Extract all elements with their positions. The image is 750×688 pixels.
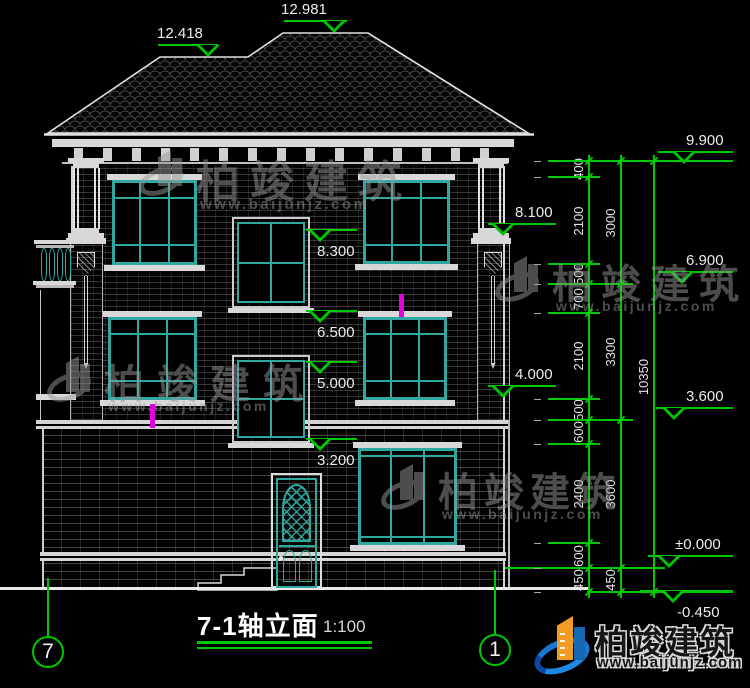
elevation-triangle-inner bbox=[326, 21, 342, 29]
door-mid-rail bbox=[279, 545, 315, 547]
dim-tick-line bbox=[548, 263, 600, 265]
column-right-shaft-line bbox=[499, 168, 501, 229]
elevation-triangle-inner bbox=[661, 556, 677, 564]
elevation-triangle-icon bbox=[672, 152, 696, 164]
balcony-deck-2 bbox=[36, 285, 74, 288]
dim-tick-line bbox=[548, 312, 600, 314]
elevation-triangle-inner bbox=[665, 591, 681, 599]
dim-label: 3600 bbox=[602, 459, 618, 529]
balcony-wing-band bbox=[36, 394, 76, 400]
elevation-triangle-inner bbox=[676, 152, 692, 160]
column-right-shaft-line bbox=[478, 168, 480, 229]
revision-mark bbox=[399, 294, 404, 317]
elevation-value: 12.418 bbox=[157, 25, 217, 43]
stair-window-mullion-h bbox=[239, 398, 303, 400]
window-sill bbox=[350, 545, 465, 551]
cornice-fascia bbox=[52, 139, 514, 147]
window-sill bbox=[104, 265, 205, 271]
elevation-line bbox=[640, 590, 733, 592]
column-left-shaft-line bbox=[77, 168, 79, 229]
balcony-top-rail bbox=[34, 240, 75, 244]
elevation-value: 8.300 bbox=[317, 243, 377, 261]
column-left-shaft-line bbox=[98, 168, 100, 229]
column-right-pedestal-cap bbox=[471, 238, 511, 244]
dim-ext-dash bbox=[534, 284, 541, 285]
elevation-line bbox=[658, 271, 733, 273]
dim-label: 2400 bbox=[570, 459, 586, 529]
dim-tick-line bbox=[548, 398, 600, 400]
pier-right-downpipe bbox=[491, 276, 495, 364]
balcony-baluster bbox=[49, 248, 55, 281]
door-panel-left bbox=[283, 550, 296, 582]
window-mullion-v bbox=[390, 451, 392, 542]
elevation-drawing-canvas: 7-1轴立面 1:100 柏竣建筑 www.baijunjz.com const… bbox=[0, 0, 750, 688]
elevation-triangle-icon bbox=[661, 591, 685, 603]
elevation-value: 6.900 bbox=[686, 252, 746, 270]
cornice-dentil-band bbox=[74, 148, 506, 161]
window-sill bbox=[355, 264, 458, 270]
elevation-triangle-icon bbox=[196, 45, 220, 57]
elevation-triangle-inner bbox=[674, 272, 690, 280]
title-underline-1 bbox=[197, 641, 372, 644]
balcony-wing-wall bbox=[40, 290, 73, 420]
brand-tower-blue-icon bbox=[574, 627, 585, 660]
elevation-triangle-inner bbox=[666, 408, 682, 416]
dim-tick-line bbox=[548, 176, 600, 178]
brand-tower-windows bbox=[560, 628, 565, 656]
dim-chain-line bbox=[620, 155, 622, 598]
elevation-value: 9.900 bbox=[686, 132, 746, 150]
window-mullion-h bbox=[366, 380, 444, 382]
elevation-value: 4.000 bbox=[515, 366, 575, 384]
column-left-shaft-line bbox=[73, 168, 75, 229]
wall-edge-right-inner bbox=[508, 420, 510, 588]
elevation-value: 3.600 bbox=[686, 388, 746, 406]
elevation-value: 3.200 bbox=[317, 452, 377, 470]
window-mullion-h bbox=[366, 333, 444, 335]
column-left-shaft-line bbox=[94, 168, 96, 229]
dim-ext-dash bbox=[534, 313, 541, 314]
drawing-scale: 1:100 bbox=[323, 617, 366, 637]
brand-url: www.baijunjz.com bbox=[597, 654, 742, 671]
elevation-value: ±0.000 bbox=[675, 536, 735, 554]
dim-ext-dash bbox=[534, 399, 541, 400]
window-mullion-v bbox=[423, 451, 425, 542]
door-knob bbox=[279, 556, 283, 560]
elevation-triangle-icon bbox=[657, 556, 681, 568]
pier-left-downpipe bbox=[84, 276, 88, 364]
window-mullion-h bbox=[111, 333, 194, 335]
dim-tick-line bbox=[505, 567, 665, 569]
dim-tick-line bbox=[548, 283, 633, 285]
roof-tiles bbox=[48, 33, 528, 133]
title-underline-2 bbox=[197, 647, 372, 649]
elevation-triangle-icon bbox=[670, 272, 694, 284]
dim-ext-dash bbox=[534, 420, 541, 421]
drawing-title: 7-1轴立面 bbox=[197, 606, 319, 643]
dim-ext-dash bbox=[534, 161, 541, 162]
window-mullion-v bbox=[139, 183, 141, 262]
dim-label: 10350 bbox=[635, 342, 651, 412]
dim-label: 600 bbox=[570, 397, 586, 467]
window-mullion-h bbox=[111, 380, 194, 382]
dim-label: 450 bbox=[602, 545, 618, 615]
column-right-shaft-line bbox=[482, 168, 484, 229]
axis-leader-line bbox=[494, 570, 496, 634]
dim-label: 3300 bbox=[602, 317, 618, 387]
axis-leader-line bbox=[47, 578, 49, 636]
stair-window-sill bbox=[228, 443, 314, 448]
dim-ext-dash bbox=[534, 568, 541, 569]
elevation-value: 6.500 bbox=[317, 324, 377, 342]
elevation-value: 12.981 bbox=[281, 1, 341, 19]
window-frame bbox=[112, 180, 197, 265]
balcony-baluster bbox=[65, 248, 71, 281]
elevation-value: 5.000 bbox=[317, 375, 377, 393]
window-mullion-h bbox=[366, 244, 447, 246]
stair-window-sill bbox=[228, 308, 314, 313]
dim-tick-line bbox=[548, 443, 600, 445]
window-mullion-h bbox=[361, 536, 454, 538]
elevation-triangle-icon bbox=[662, 408, 686, 420]
window-mullion-v bbox=[168, 183, 170, 262]
stair-window-mullion-h bbox=[239, 262, 303, 264]
revision-mark bbox=[150, 404, 155, 428]
watermark-tower-icon bbox=[514, 256, 527, 292]
cornice-lower-line bbox=[62, 162, 508, 164]
wall-edge-left-ground bbox=[42, 420, 44, 588]
column-right-shaft-line bbox=[503, 168, 505, 229]
window-frame bbox=[108, 317, 197, 400]
dim-ext-dash bbox=[534, 264, 541, 265]
dim-ext-dash bbox=[534, 543, 541, 544]
window-mullion-h bbox=[115, 197, 194, 199]
dim-chain-line bbox=[588, 155, 590, 598]
balcony-baluster bbox=[41, 248, 47, 281]
dim-ext-dash bbox=[534, 592, 541, 593]
dim-tick-line bbox=[548, 160, 733, 162]
elevation-value: 8.100 bbox=[515, 204, 575, 222]
balcony-baluster bbox=[57, 248, 63, 281]
door-panel-right bbox=[299, 550, 312, 582]
axis-bubble: 7 bbox=[32, 636, 64, 668]
dim-label: 3000 bbox=[602, 188, 618, 258]
watermark-tower2-icon bbox=[528, 264, 538, 292]
window-mullion-v bbox=[420, 183, 422, 261]
brand-logo-block: 柏竣建筑 www.baijunjz.com bbox=[533, 614, 748, 684]
dim-ext-dash bbox=[534, 177, 541, 178]
window-mullion-v bbox=[391, 183, 393, 261]
dim-ext-dash bbox=[534, 444, 541, 445]
window-mullion-h bbox=[115, 244, 194, 246]
window-mullion-v bbox=[418, 320, 420, 397]
door-arch-lattice bbox=[282, 484, 311, 542]
dim-label: 450 bbox=[570, 545, 586, 615]
window-mullion-v bbox=[390, 320, 392, 397]
window-mullion-v bbox=[137, 320, 139, 397]
window-sill bbox=[355, 400, 455, 406]
elevation-triangle-inner bbox=[200, 45, 216, 53]
window-mullion-h bbox=[366, 197, 447, 199]
axis-bubble: 1 bbox=[479, 634, 511, 666]
dim-chain-line bbox=[653, 155, 655, 598]
window-mullion-v bbox=[166, 320, 168, 397]
roof-outline bbox=[48, 33, 528, 133]
dim-tick-line bbox=[548, 419, 633, 421]
dim-tick-line bbox=[548, 542, 600, 544]
elevation-triangle-icon bbox=[322, 21, 346, 33]
